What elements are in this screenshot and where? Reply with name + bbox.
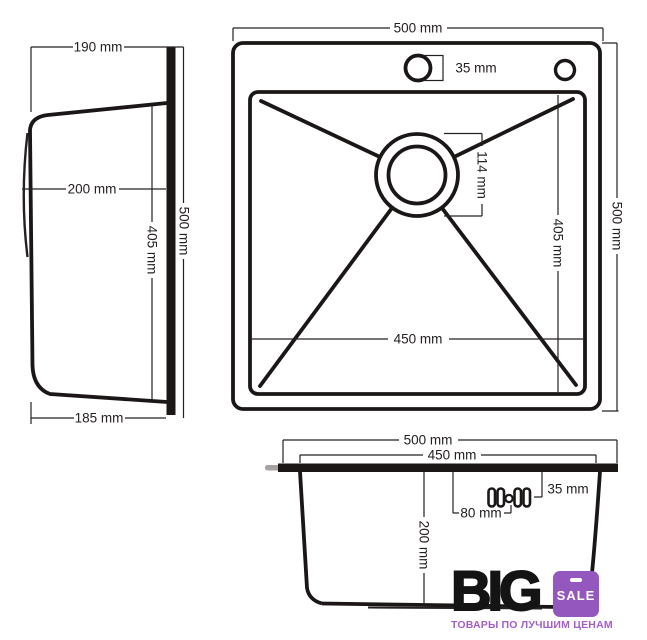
drain-diameter-label: 114 mm: [475, 151, 490, 199]
side-view-total-length-label: 500 mm: [177, 207, 192, 256]
top-view-outer-rim: [233, 43, 600, 409]
front-view-dim-35-lines: [534, 472, 542, 497]
side-view-width-bottom-label: 185 mm: [75, 411, 124, 426]
front-view-left-wall: [300, 472, 322, 604]
faucet-hole-diameter-label: 35 mm: [455, 61, 496, 76]
front-view-clip-spacing-label: 80 mm: [460, 506, 501, 521]
side-view-wall-bulge: [24, 133, 28, 257]
drain-inner-circle: [389, 147, 446, 204]
side-view-width-top-label: 190 mm: [74, 40, 123, 55]
front-view-clip-offset-label: 35 mm: [547, 482, 588, 497]
top-view-total-depth-label: 500 mm: [610, 202, 625, 251]
faucet-hole: [406, 56, 431, 81]
sale-badge: SALE: [553, 571, 599, 617]
top-view: 35 mm 114 mm 500 mm 450 mm 405 mm 500 mm: [233, 21, 625, 412]
technical-drawing-svg: 190 mm 200 mm 405 mm 500 mm 185 mm 35 mm…: [0, 0, 647, 640]
side-view-depth-label: 200 mm: [68, 182, 117, 197]
front-view-total-width-label: 500 mm: [404, 433, 453, 448]
side-view-flange-bar: [167, 47, 176, 415]
front-view-rim-bar: [278, 464, 618, 473]
front-view-right-wall: [591, 472, 600, 584]
tag-hole-icon: [570, 578, 582, 582]
side-view: 190 mm 200 mm 405 mm 500 mm 185 mm: [22, 40, 192, 426]
front-view-bowl-width-label: 450 mm: [428, 448, 477, 463]
brand-tagline: ТОВАРЫ ПО ЛУЧШИМ ЦЕНАМ: [451, 619, 599, 631]
brand-text: BIG: [451, 563, 539, 619]
side-view-bowl-length-label: 405 mm: [145, 226, 160, 275]
top-view-bowl-depth-label: 405 mm: [551, 219, 566, 268]
front-view-bowl-height-label: 200 mm: [417, 521, 432, 570]
top-view-bowl-width-label: 450 mm: [394, 332, 443, 347]
sale-badge-label: SALE: [553, 588, 599, 603]
accessory-hole: [556, 61, 575, 80]
top-view-total-width-label: 500 mm: [394, 21, 443, 36]
mounting-clip: [489, 489, 531, 507]
